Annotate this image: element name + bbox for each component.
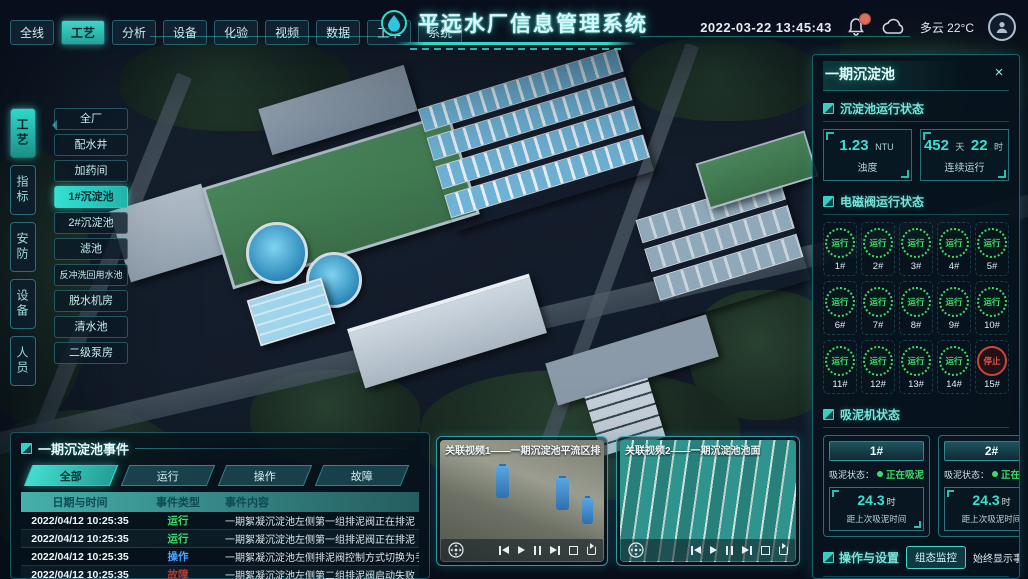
map-building [347,274,547,389]
map-small-pools [247,278,336,347]
next-icon[interactable] [742,546,752,555]
uptime-days-unit: 天 [955,142,964,152]
stat-value-line: 1.23 NTU [826,137,909,155]
events-tab-4[interactable]: 故障 [315,465,409,486]
event-type-badge: 故障 [139,567,217,579]
valve-status: 运行 [983,296,1000,308]
ptz-pad-icon[interactable] [448,542,464,558]
valve-label: 13# [900,379,932,390]
valve-gauge-icon: 运行 [939,228,969,258]
events-tab-3[interactable]: 操作 [218,465,312,486]
valve-cell-12#: 运行12# [861,340,895,394]
process-submenu: 全厂配水井加药间1#沉淀池2#沉淀池滤池反冲洗回用水池脱水机房清水池二级泵房 [54,108,128,368]
loop-icon[interactable] [587,546,596,555]
event-row[interactable]: 2022/04/12 10:25:35操作一期絮凝沉淀池左侧排泥阀控制方式切换为… [21,548,419,566]
weather-text: 多云 22°C [920,19,974,36]
submenu-item-1[interactable]: 全厂 [54,108,128,130]
valve-status: 运行 [907,355,924,367]
loop-icon[interactable] [779,546,788,555]
video-panel-1: 关联视频1——一期沉淀池平流区排泥管廊 [436,436,608,566]
valve-status: 运行 [983,237,1000,249]
submenu-item-5[interactable]: 2#沉淀池 [54,212,128,234]
sidebar-tab-2[interactable]: 指标 [10,165,36,215]
nav-tab-1[interactable]: 全线 [10,20,54,45]
valve-cell-1#: 运行1# [823,222,857,276]
mud-value-line: 24.3时 [947,492,1020,510]
valve-label: 8# [900,320,932,331]
valve-status: 运行 [869,237,886,249]
event-type-badge: 运行 [139,513,217,528]
mud-value-desc: 距上次吸泥时间 [947,513,1020,525]
event-datetime: 2022/04/12 10:25:35 [21,569,139,579]
events-tab-label: 全部 [60,468,82,484]
nav-tab-7[interactable]: 数据 [316,20,360,45]
ptz-pad-icon[interactable] [628,542,644,558]
submenu-item-9[interactable]: 清水池 [54,316,128,338]
uptime-stat-card: 452 天 22 时 连续运行 [920,129,1009,181]
panel-title: 一期沉淀池 [825,64,895,84]
mud-hours-value: 24.3 [857,492,884,508]
valve-cell-4#: 运行4# [937,222,971,276]
submenu-item-2[interactable]: 配水井 [54,134,128,156]
ops-section-header: 操作与设置 [823,549,899,566]
status-dot [877,471,883,477]
app-logo-icon [380,9,408,37]
uptime-days-value: 452 [924,137,949,154]
events-tab-label: 操作 [254,468,276,484]
valve-gauge-icon: 运行 [939,287,969,317]
valve-cell-9#: 运行9# [937,281,971,335]
section-icon [21,443,32,454]
pause-icon[interactable] [534,546,541,555]
nav-tab-5[interactable]: 化验 [214,20,258,45]
fullscreen-icon[interactable] [569,546,578,555]
valve-label: 4# [938,261,970,272]
close-icon[interactable] [991,66,1007,82]
event-content: 一期絮凝沉淀池左侧第二组排泥阀启动失败 [217,567,419,579]
video-title: 关联视频1——一期沉淀池平流区排泥管廊 [445,442,601,457]
mud-status-row: 吸泥状态：正在吸泥 [944,467,1020,481]
notification-badge [859,13,871,25]
valve-label: 14# [938,379,970,390]
turbidity-label: 浊度 [826,159,909,174]
valve-status: 运行 [945,237,962,249]
valve-gauge-icon: 运行 [825,228,855,258]
run-status-stats: 1.23 NTU 浊度 452 天 22 时 连续运行 [823,129,1009,181]
valve-cell-15#: 停止15# [975,340,1009,394]
mud-status-row: 吸泥状态：正在吸泥 [829,467,924,481]
event-datetime: 2022/04/12 10:25:35 [21,551,139,563]
section-icon [823,196,834,207]
user-avatar[interactable] [988,13,1016,41]
valve-label: 15# [976,379,1008,390]
mud-value-desc: 距上次吸泥时间 [832,513,921,525]
valve-gauge-icon: 运行 [863,287,893,317]
column-header-content: 事件内容 [217,494,419,510]
event-row[interactable]: 2022/04/12 10:25:35故障一期絮凝沉淀池左侧第二组排泥阀启动失败 [21,566,419,579]
valve-cell-5#: 运行5# [975,222,1009,276]
header-decor-line [150,36,390,37]
mud-hours-unit: 时 [887,497,896,507]
event-row[interactable]: 2022/04/12 10:25:35运行一期絮凝沉淀池左侧第一组排泥阀正在排泥 [21,512,419,530]
valve-cell-10#: 运行10# [975,281,1009,335]
fullscreen-icon[interactable] [761,546,770,555]
section-title: 电磁阀运行状态 [840,193,924,210]
submenu-item-6[interactable]: 滤池 [54,238,128,260]
map-trees [630,36,820,121]
map-round-pool [246,222,308,284]
app-header: 平远水厂信息管理系统 [380,8,648,38]
play-icon[interactable] [710,546,717,554]
weather-cloud-icon [880,18,906,36]
event-row[interactable]: 2022/04/12 10:25:35运行一期絮凝沉淀池左侧第一组排泥阀正在排泥 [21,530,419,548]
valve-status: 运行 [945,355,962,367]
next-icon[interactable] [550,546,560,555]
nav-tab-2[interactable]: 工艺 [61,20,105,45]
valve-status: 运行 [907,296,924,308]
events-filter-tabs: 全部运行操作故障 [28,465,419,486]
mud-hours-unit: 时 [1002,497,1011,507]
ops-settings-row: 操作与设置 组态监控 始终显示事件： [823,546,1009,577]
section-title: 吸泥机状态 [840,406,900,423]
submenu-item-4[interactable]: 1#沉淀池 [54,186,128,208]
mud-machine-id: 1# [829,441,924,461]
mud-status-value: 正在吸泥 [1001,467,1020,481]
sedimentation-detail-panel: 一期沉淀池 沉淀池运行状态 1.23 NTU 浊度 452 天 22 时 [812,54,1020,579]
mud-status-value: 正在吸泥 [886,467,924,481]
events-tab-label: 故障 [351,468,373,484]
valve-cell-3#: 运行3# [899,222,933,276]
valve-status: 运行 [831,237,848,249]
events-title: 一期沉淀池事件 [38,439,129,458]
panel-header: 一期沉淀池 [823,61,1009,91]
event-datetime: 2022/04/12 10:25:35 [21,533,139,545]
event-datetime: 2022/04/12 10:25:35 [21,515,139,527]
valve-cell-13#: 运行13# [899,340,933,394]
play-icon[interactable] [518,546,525,554]
mud-section-header: 吸泥机状态 [823,403,1009,428]
valve-gauge-icon: 停止 [977,346,1007,376]
header-decor-line [410,48,622,50]
uptime-hours-unit: 时 [994,142,1003,152]
uptime-hours-value: 22 [971,137,988,154]
submenu-item-10[interactable]: 二级泵房 [54,342,128,364]
page-title: 平远水厂信息管理系统 [418,8,648,38]
submenu-item-3[interactable]: 加药间 [54,160,128,182]
section-icon [823,409,834,420]
notifications-button[interactable] [846,17,866,37]
valve-label: 1# [824,261,856,272]
left-category-tabs: 工艺指标安防设备人员 [10,108,36,386]
valve-cell-7#: 运行7# [861,281,895,335]
app-window: 全线工艺分析设备化验视频数据工单系统 平远水厂信息管理系统 2022-03-22… [0,0,1028,579]
events-panel: 一期沉淀池事件 全部运行操作故障 日期与时间 事件类型 事件内容 2022/04… [10,432,430,579]
previous-icon[interactable] [499,546,509,555]
events-table-body: 2022/04/12 10:25:35运行一期絮凝沉淀池左侧第一组排泥阀正在排泥… [21,512,419,579]
event-content: 一期絮凝沉淀池左侧排泥阀控制方式切换为手动 [217,549,419,564]
column-header-type: 事件类型 [139,494,217,510]
valve-gauge-icon: 运行 [901,346,931,376]
valve-label: 5# [976,261,1008,272]
nav-tab-4[interactable]: 设备 [163,20,207,45]
mud-status-label: 吸泥状态： [829,468,874,481]
sidebar-tab-1[interactable]: 工艺 [10,108,36,158]
header-right: 2022-03-22 13:45:43 多云 22°C [700,13,1016,41]
valve-status: 运行 [869,296,886,308]
valve-gauge-icon: 运行 [825,346,855,376]
valve-gauge-icon: 运行 [939,346,969,376]
valve-cell-6#: 运行6# [823,281,857,335]
column-header-datetime: 日期与时间 [21,494,139,510]
mud-value-box: 24.3时距上次吸泥时间 [944,487,1020,531]
mud-hours-value: 24.3 [972,492,999,508]
valve-gauge-icon: 运行 [977,228,1007,258]
valve-status: 运行 [869,355,886,367]
always-show-events-label: 始终显示事件： [973,550,1020,565]
stat-value-line: 452 天 22 时 [923,137,1006,155]
submenu-item-7[interactable]: 反冲洗回用水池 [54,264,128,286]
valve-gauge-icon: 运行 [825,287,855,317]
status-dot [992,471,998,477]
video-panel-2: 关联视频2——一期沉淀池池面 [616,436,800,566]
valve-status: 运行 [945,296,962,308]
section-title: 操作与设置 [839,549,899,566]
previous-icon[interactable] [691,546,701,555]
valve-cell-11#: 运行11# [823,340,857,394]
sidebar-tab-3[interactable]: 安防 [10,222,36,272]
valve-gauge-icon: 运行 [901,287,931,317]
mud-value-box: 24.3时距上次吸泥时间 [829,487,924,531]
valve-label: 3# [900,261,932,272]
valve-cell-14#: 运行14# [937,340,971,394]
event-type-badge: 运行 [139,531,217,546]
valve-gauge-icon: 运行 [863,346,893,376]
section-title: 沉淀池运行状态 [840,100,924,117]
section-icon [823,552,834,563]
video-controls [441,539,603,561]
valve-label: 12# [862,379,894,390]
pause-icon[interactable] [726,546,733,555]
valve-gauge-icon: 运行 [901,228,931,258]
header-line [135,448,419,449]
mud-machine-1: 1#吸泥状态：正在吸泥24.3时距上次吸泥时间 [823,435,930,537]
video-title: 关联视频2——一期沉淀池池面 [625,442,793,457]
valve-label: 9# [938,320,970,331]
valve-status: 运行 [831,296,848,308]
header-decor-line [396,42,636,45]
valve-label: 10# [976,320,1008,331]
valve-label: 6# [824,320,856,331]
nav-tab-3[interactable]: 分析 [112,20,156,45]
valve-gauge-icon: 运行 [863,228,893,258]
sidebar-tab-4[interactable]: 设备 [10,279,36,329]
event-content: 一期絮凝沉淀池左侧第一组排泥阀正在排泥 [217,513,419,528]
mud-machines: 1#吸泥状态：正在吸泥24.3时距上次吸泥时间2#吸泥状态：正在吸泥24.3时距… [823,435,1009,537]
event-type-badge: 操作 [139,549,217,564]
valve-cell-2#: 运行2# [861,222,895,276]
valve-status: 停止 [983,355,1000,367]
section-icon [823,103,834,114]
scada-monitor-button[interactable]: 组态监控 [906,546,966,569]
valves-section-header: 电磁阀运行状态 [823,190,1009,215]
valve-label: 7# [862,320,894,331]
turbidity-stat-card: 1.23 NTU 浊度 [823,129,912,181]
uptime-label: 连续运行 [923,159,1006,174]
mud-machine-2: 2#吸泥状态：正在吸泥24.3时距上次吸泥时间 [938,435,1020,537]
turbidity-unit: NTU [875,142,894,152]
top-bar: 全线工艺分析设备化验视频数据工单系统 平远水厂信息管理系统 2022-03-22… [0,0,1028,46]
events-header: 一期沉淀池事件 [21,439,419,458]
mud-machine-id: 2# [944,441,1020,461]
valve-gauge-icon: 运行 [977,287,1007,317]
valve-status: 运行 [831,355,848,367]
valve-cell-8#: 运行8# [899,281,933,335]
valve-label: 2# [862,261,894,272]
video-controls [621,539,795,561]
events-tab-1[interactable]: 全部 [24,465,118,486]
sidebar-tab-5[interactable]: 人员 [10,336,36,386]
user-icon [995,20,1009,34]
run-status-section-header: 沉淀池运行状态 [823,97,1009,122]
valve-status-grid: 运行1#运行2#运行3#运行4#运行5#运行6#运行7#运行8#运行9#运行10… [823,222,1009,394]
turbidity-value: 1.23 [839,137,868,154]
valve-label: 11# [824,379,856,390]
events-tab-label: 运行 [157,468,179,484]
event-content: 一期絮凝沉淀池左侧第一组排泥阀正在排泥 [217,531,419,546]
events-tab-2[interactable]: 运行 [121,465,215,486]
mud-value-line: 24.3时 [832,492,921,510]
valve-status: 运行 [907,237,924,249]
submenu-item-8[interactable]: 脱水机房 [54,290,128,312]
map-sedimentation-tanks [418,48,654,231]
nav-tab-6[interactable]: 视频 [265,20,309,45]
events-table-header: 日期与时间 事件类型 事件内容 [21,492,419,512]
datetime-text: 2022-03-22 13:45:43 [700,20,832,35]
mud-status-label: 吸泥状态： [944,468,989,481]
